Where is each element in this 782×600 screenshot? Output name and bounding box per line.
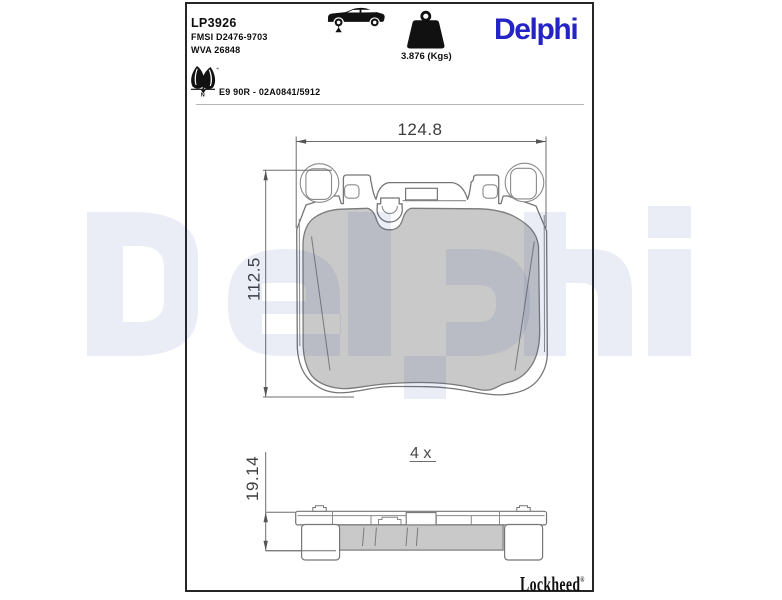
svg-text:112.5: 112.5 — [245, 257, 264, 301]
svg-text:4 x: 4 x — [410, 445, 431, 462]
svg-text:19.14: 19.14 — [243, 456, 262, 501]
svg-text:124.8: 124.8 — [397, 120, 442, 139]
svg-text:N: N — [201, 93, 205, 99]
